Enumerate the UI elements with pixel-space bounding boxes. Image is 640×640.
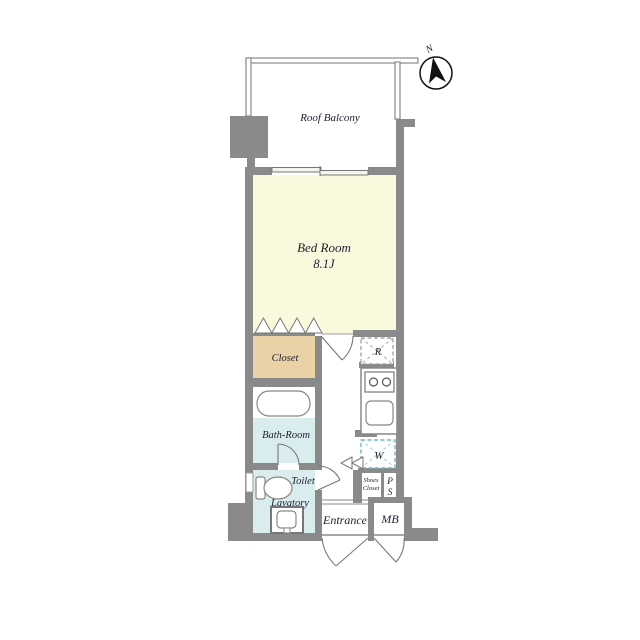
refrigerator-label: R — [374, 347, 382, 358]
wall-entrance-mb-divider — [368, 503, 374, 533]
pipe-space-label-s: S — [388, 488, 393, 498]
toilet-label: Toilet — [291, 476, 316, 487]
wall-bedroom-bottom-right — [353, 330, 404, 337]
balcony-window — [272, 166, 368, 176]
wall-below-washer — [358, 468, 404, 473]
bedroom-label: Bed Room — [297, 240, 351, 255]
washbasin-faucet — [284, 528, 290, 533]
wall-mb-right — [404, 497, 412, 533]
refrigerator-space: R — [361, 338, 393, 364]
wall-inner-vertical-lower — [315, 490, 322, 533]
stove-burner-left — [370, 378, 378, 386]
railing-right — [395, 62, 400, 119]
wall-bedroom-top-right — [368, 167, 396, 175]
mb-door — [374, 538, 404, 562]
balcony-railing — [246, 58, 418, 119]
entrance-door — [322, 538, 368, 566]
compass-north-label: N — [423, 42, 436, 56]
washer-label: W — [374, 450, 384, 462]
bathroom-label: Bath-Room — [262, 430, 310, 441]
wall-inner-vertical-upper — [315, 336, 322, 470]
washer-space: W — [361, 440, 395, 468]
kitchen-counter — [361, 368, 397, 434]
entrance-label: Entrance — [322, 513, 368, 527]
lavatory-label: Lavatory — [270, 498, 309, 509]
shoes-closet-label-line1: Shoes — [363, 477, 379, 484]
wall-bottom-pier — [368, 533, 374, 541]
window-pane-left — [272, 168, 321, 173]
wall-bottom-right-block — [404, 528, 438, 541]
closet-label: Closet — [272, 353, 300, 364]
wall-shoes-left — [353, 470, 362, 503]
kitchen-sink — [366, 401, 393, 425]
toilet-bowl — [264, 477, 292, 499]
wall-balcony-pillar — [230, 116, 268, 158]
wall-pillar-stub — [247, 157, 255, 168]
bedroom-size-label: 8.1J — [313, 257, 336, 271]
wall-bottom-left-run — [228, 533, 322, 541]
washbasin — [271, 507, 303, 533]
wall-right — [396, 119, 404, 497]
railing-top — [246, 58, 418, 63]
wall-closet-bottom — [245, 378, 322, 387]
bathtub — [257, 391, 310, 416]
roof-balcony-label: Roof Balcony — [299, 112, 360, 124]
wall-bedroom-top-left — [245, 167, 272, 175]
wall-bath-bottom-left — [245, 463, 278, 470]
bedroom-door — [321, 336, 353, 360]
toilet-fixture — [256, 477, 292, 499]
railing-left — [246, 58, 251, 116]
shoes-closet-label-line2: Closet — [363, 485, 380, 492]
compass: N — [420, 42, 452, 89]
window-pane-right — [320, 171, 368, 176]
shoes-closet-bifold-door — [341, 457, 363, 469]
pipe-space-label-p: P — [386, 477, 393, 487]
mb-label: MB — [380, 512, 399, 526]
lavatory-wall-niche — [246, 473, 253, 492]
wall-shoes-ps-divider — [381, 473, 384, 497]
stove-burner-right — [383, 378, 391, 386]
floor-plan: R W N Roof Balcony Bed Room 8.1J Closet … — [0, 0, 640, 640]
